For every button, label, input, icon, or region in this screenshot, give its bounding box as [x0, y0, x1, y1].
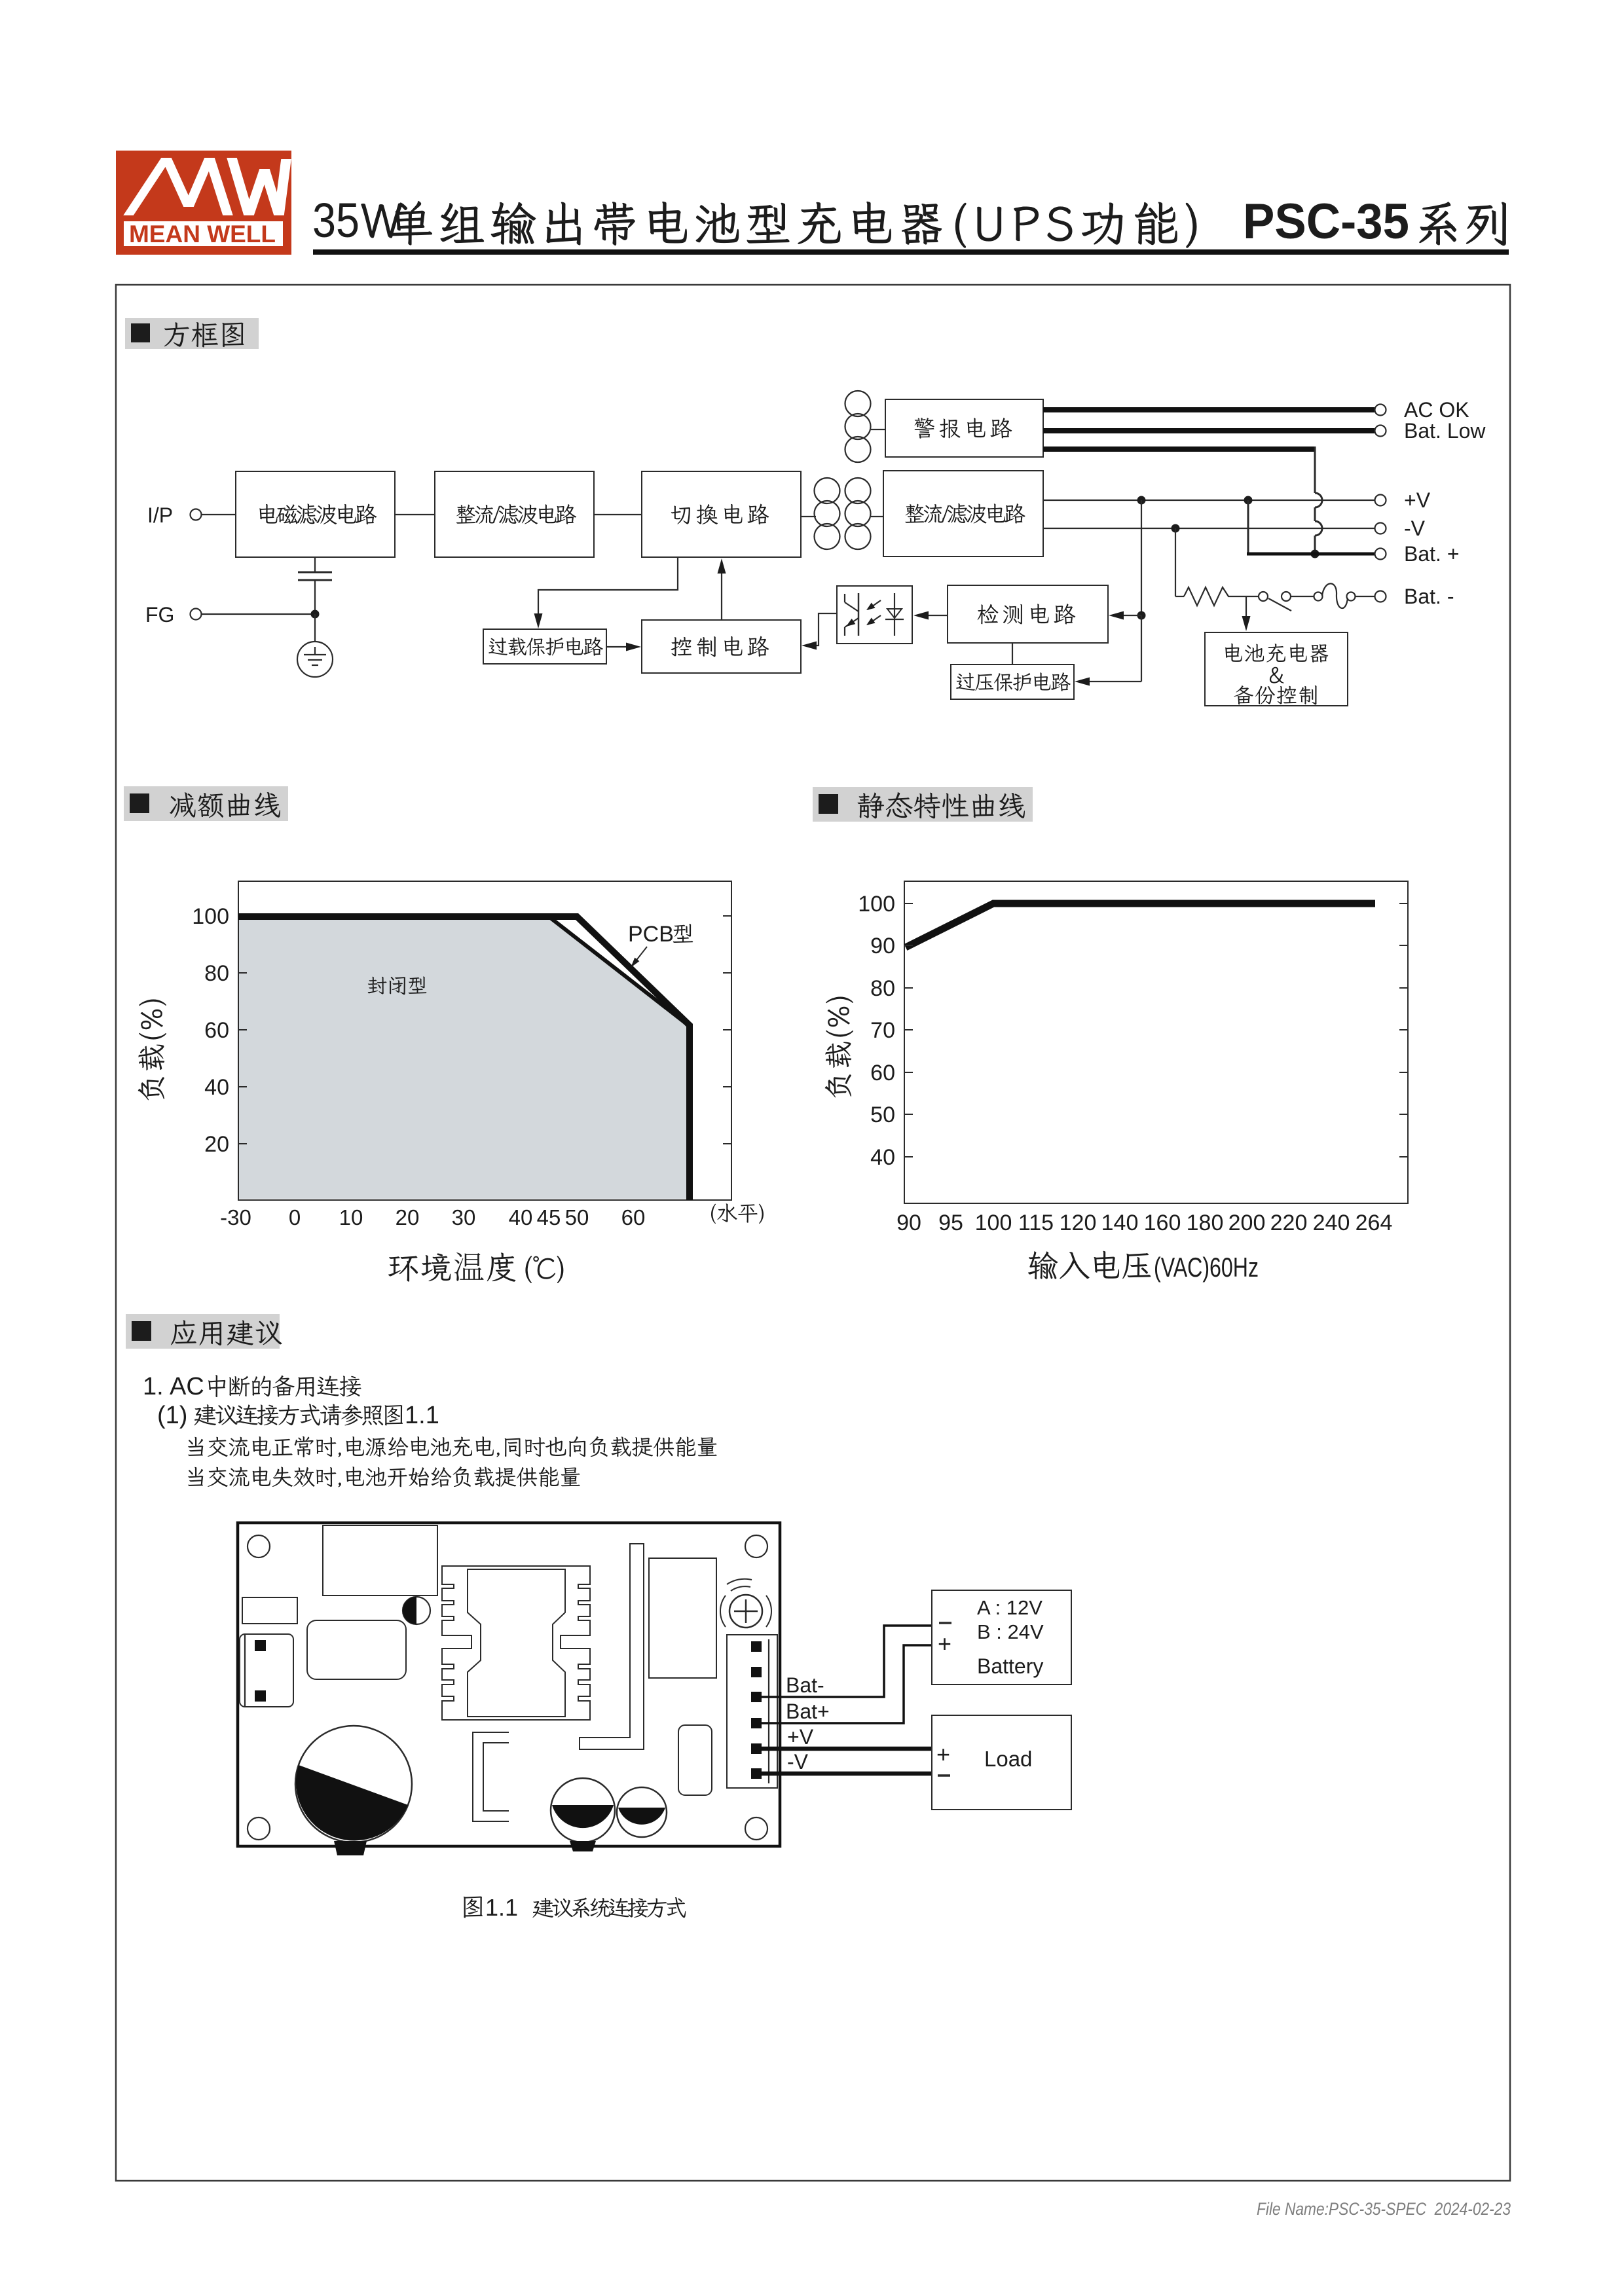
svg-text:Bat. Low: Bat. Low [1404, 419, 1486, 443]
svg-text:240: 240 [1313, 1211, 1350, 1235]
svg-text:120: 120 [1060, 1211, 1097, 1235]
svg-text:160: 160 [1144, 1211, 1181, 1235]
svg-text:45: 45 [537, 1205, 561, 1230]
svg-text:90: 90 [896, 1211, 921, 1235]
svg-text:200: 200 [1228, 1211, 1266, 1235]
svg-text:35: 35 [312, 193, 360, 247]
svg-text:I/P: I/P [147, 503, 173, 527]
svg-text:70: 70 [870, 1018, 895, 1043]
svg-text:+V: +V [787, 1725, 814, 1749]
svg-text:1.: 1. [143, 1373, 164, 1400]
svg-text:(1): (1) [157, 1402, 187, 1429]
svg-text:1.1: 1.1 [405, 1402, 439, 1429]
svg-text:20: 20 [396, 1205, 420, 1230]
svg-text:80: 80 [870, 976, 895, 1001]
svg-text:95: 95 [938, 1211, 963, 1235]
svg-text:20: 20 [204, 1132, 229, 1157]
svg-text:-30: -30 [220, 1205, 251, 1230]
svg-text:PCB: PCB [628, 922, 674, 947]
svg-text:10: 10 [339, 1205, 363, 1230]
svg-text:Bat. -: Bat. - [1404, 585, 1454, 608]
svg-text:115: 115 [1018, 1211, 1054, 1235]
svg-text:60: 60 [204, 1018, 229, 1043]
svg-text:50: 50 [565, 1205, 589, 1230]
svg-text:+: + [938, 1630, 951, 1657]
svg-text:90: 90 [870, 934, 895, 958]
svg-text:Bat-: Bat- [786, 1673, 824, 1697]
svg-text:100: 100 [975, 1211, 1012, 1235]
svg-text:1.1: 1.1 [485, 1894, 518, 1921]
svg-text:30: 30 [452, 1205, 476, 1230]
svg-text:100: 100 [192, 904, 229, 929]
svg-text:File Name:PSC-35-SPEC 2024-02: File Name:PSC-35-SPEC 2024-02-23 [1257, 2199, 1511, 2219]
svg-text:60: 60 [870, 1061, 895, 1085]
svg-text:(VAC)60Hz: (VAC)60Hz [1154, 1252, 1259, 1283]
svg-text:MEAN WELL: MEAN WELL [129, 221, 276, 247]
svg-text:264: 264 [1356, 1211, 1393, 1235]
svg-text:AC OK: AC OK [1404, 398, 1469, 422]
svg-text:Load: Load [984, 1747, 1032, 1771]
svg-text:-V: -V [787, 1750, 809, 1774]
svg-text:Bat+: Bat+ [786, 1700, 830, 1723]
svg-text:FG: FG [145, 603, 174, 627]
svg-text:+: + [936, 1741, 950, 1768]
svg-text:50: 50 [870, 1102, 895, 1127]
svg-text:60: 60 [621, 1205, 646, 1230]
svg-text:Battery: Battery [977, 1654, 1043, 1678]
svg-text:PSC-35: PSC-35 [1243, 194, 1409, 249]
svg-text:A : 12V: A : 12V [977, 1596, 1043, 1619]
svg-text:140: 140 [1101, 1211, 1139, 1235]
svg-text:180: 180 [1187, 1211, 1224, 1235]
svg-text:AC: AC [170, 1373, 204, 1400]
svg-text:40: 40 [870, 1145, 895, 1170]
svg-text:0: 0 [289, 1205, 301, 1230]
svg-text:80: 80 [204, 961, 229, 986]
svg-text:100: 100 [858, 892, 895, 917]
svg-text:B : 24V: B : 24V [977, 1620, 1044, 1643]
svg-text:40: 40 [204, 1075, 229, 1100]
svg-text:Bat. +: Bat. + [1404, 542, 1460, 566]
svg-text:40: 40 [509, 1205, 533, 1230]
svg-text:-V: -V [1404, 517, 1426, 540]
svg-text:220: 220 [1270, 1211, 1308, 1235]
svg-text:+V: +V [1404, 488, 1431, 512]
